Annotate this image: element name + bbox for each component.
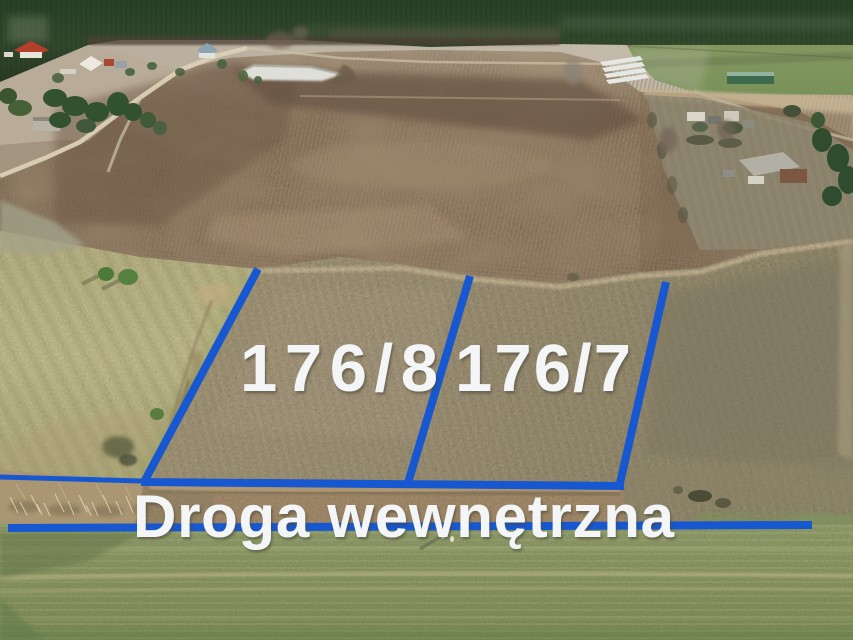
svg-text:176/7: 176/7 (455, 331, 631, 406)
svg-text:176/8: 176/8 (240, 331, 438, 406)
svg-text:Droga wewnętrzna: Droga wewnętrzna (133, 483, 675, 550)
